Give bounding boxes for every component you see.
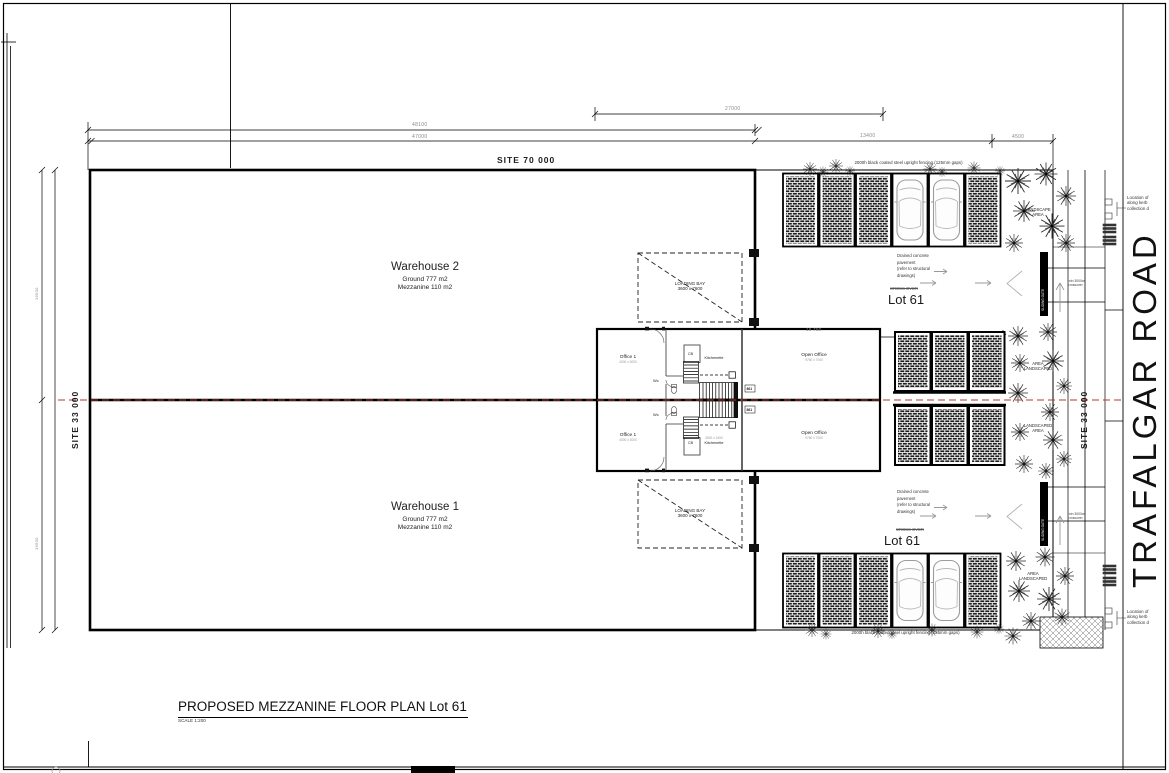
car-icon: [895, 180, 926, 240]
pavement-note-line: drawings): [897, 509, 930, 516]
pavement-note-line: (refer to structural: [897, 266, 930, 273]
lot-label-bottom: Lot 61: [884, 533, 920, 549]
kitchenette-name: Kitchenette: [690, 441, 738, 446]
dim-16500-upper: 16500: [35, 287, 40, 300]
warehouse2-ground: Ground 777 m2: [350, 276, 500, 284]
kitchenette-label-top: Kitchenette: [690, 356, 738, 361]
warehouse1-mezzanine: Mezzanine 110 m2: [350, 524, 500, 532]
tree-icon: [1057, 234, 1075, 252]
tree-icon: [1039, 323, 1057, 341]
crossover-note-bottom: min 3000w crossover: [1068, 512, 1084, 520]
landscape-label-bottom-right: AREA LANDSCAPED: [1007, 571, 1059, 581]
landscape-label-mid-upper: AREA LANDSCAPED: [1012, 361, 1064, 371]
open-office-label-top: Open Office 9760 x 7000: [782, 353, 846, 363]
dim-13400: 13400: [860, 133, 875, 139]
dim-27000: 27000: [725, 106, 740, 112]
warehouse2-mezzanine: Mezzanine 110 m2: [350, 284, 500, 292]
dim-47000: 47000: [412, 134, 427, 140]
kerb-note-line: collection d: [1127, 620, 1149, 625]
hatched-pad: [1040, 617, 1103, 648]
tree-icon: [1040, 214, 1065, 239]
tree-icon: [1008, 580, 1030, 602]
tree-icon: [829, 159, 843, 173]
pavement-note-line: drawings): [897, 273, 930, 280]
site-depth-label-right: SITE 33 000: [1079, 391, 1089, 449]
kerb-note-top: Location of along kerb collection d: [1127, 195, 1149, 211]
office1-label-bottom: Office 1 4000 x 3000: [604, 433, 652, 443]
landscape-line: AREA: [1012, 428, 1064, 433]
kitchenette-label-bottom: 3600 x 2400 Kitchenette: [690, 437, 738, 445]
scale-label: SCALE 1:200: [178, 718, 206, 724]
struck-note-top: CROSS OVER: [890, 286, 918, 291]
cb-label-top: CB: [688, 352, 693, 356]
pavement-note-top: Drained concrete pavement (refer to stru…: [897, 253, 930, 279]
parking-stalls-top: [783, 174, 1001, 247]
dim-48100: 48100: [412, 122, 427, 128]
unit-tag-bottom: 861: [747, 408, 753, 412]
plan-linework: [0, 0, 1169, 773]
loading-bay-line2: 3600 x 7600: [640, 513, 740, 518]
lot-label-top: Lot 61: [888, 292, 924, 308]
kerb-note-line: along kerb: [1127, 200, 1149, 205]
landscape-line: LANDSCAPED: [1007, 576, 1059, 581]
tree-icon: [1005, 168, 1031, 194]
wc-label-top: Wc: [653, 379, 659, 384]
titleblock-mark: [411, 766, 455, 773]
dim-18750: 18 750: [806, 327, 822, 332]
unit-tag-top: 861: [747, 387, 753, 391]
warehouse2-label: Warehouse 2 Ground 777 m2 Mezzanine 110 …: [350, 261, 500, 291]
tree-icon: [1041, 403, 1059, 421]
tree-icon: [1035, 163, 1058, 186]
parking-stalls-middle: [893, 332, 1006, 465]
cb-label-bottom: CB: [688, 441, 693, 445]
tree-icon: [1056, 451, 1072, 467]
struck-note-bottom: CROSS OVER: [896, 527, 924, 532]
office1-size: 4000 x 3000: [604, 361, 652, 365]
tree-icon: [1022, 612, 1040, 630]
tree-icon: [1005, 234, 1023, 252]
loading-bay-label-bottom: LOADING BAY 3600 x 7600: [640, 508, 740, 519]
tree-icon: [1036, 548, 1055, 567]
warehouse2-name: Warehouse 2: [350, 261, 500, 275]
loading-bay-line2: 3600 x 7600: [640, 286, 740, 291]
pavement-note-line: (refer to structural: [897, 502, 930, 509]
tree-icon: [1037, 587, 1061, 611]
pavement-note-line: Drained concrete: [897, 253, 930, 260]
vehicle-crossovers: [1048, 268, 1105, 521]
road-name: TRAFALGAR ROAD: [1125, 231, 1165, 588]
open-office-size: 9760 x 7000: [782, 437, 846, 441]
pavement-note-bottom: Drained concrete pavement (refer to stru…: [897, 489, 930, 515]
tree-icon: [1015, 455, 1033, 473]
kerb-note-line: along kerb: [1127, 614, 1149, 619]
landscape-line: LANDSCAPED: [1012, 366, 1064, 371]
page-title: PROPOSED MEZZANINE FLOOR PLAN Lot 61: [178, 699, 468, 718]
crossover-note-top: min 3000w crossover: [1068, 279, 1084, 287]
tree-icon: [1038, 463, 1054, 479]
landscape-label-mid-lower: LANDSCAPED AREA: [1012, 423, 1064, 433]
site-width-label: SITE 70 000: [497, 155, 555, 165]
parking-stalls-bottom: [783, 554, 1001, 628]
landscape-line: AREA: [1012, 212, 1064, 217]
tree-icon: [1056, 186, 1076, 206]
warehouse1-ground: Ground 777 m2: [350, 516, 500, 524]
open-office-label-bottom: Open Office 9760 x 7000: [782, 431, 846, 441]
tree-icon: [1006, 551, 1026, 571]
office1-size: 4000 x 3000: [604, 439, 652, 443]
tree-icon: [1008, 326, 1028, 346]
trees-middle: [1008, 323, 1072, 479]
tree-icon: [1056, 378, 1072, 394]
car-icon: [895, 561, 926, 621]
gate-label-bottom: SLIDING GATE: [1042, 519, 1046, 541]
fencing-note-top: 2000h black coated steel upright fencing…: [846, 160, 971, 165]
gate-label-top: SLIDING GATE: [1042, 289, 1046, 311]
kitchenette-name: Kitchenette: [690, 356, 738, 361]
warehouse1-label: Warehouse 1 Ground 777 m2 Mezzanine 110 …: [350, 501, 500, 531]
landscape-label-top-right: LANDSCAPE AREA: [1012, 207, 1064, 217]
dim-16500-lower: 16500: [35, 537, 40, 550]
wc-label-bottom: Wc: [653, 413, 659, 418]
open-office-size: 9760 x 7000: [782, 359, 846, 363]
office1-label-top: Office 1 4000 x 3000: [604, 355, 652, 365]
loading-bay-label-top: LOADING BAY 3600 x 7600: [640, 281, 740, 292]
pavement-note-line: Drained concrete: [897, 489, 930, 496]
warehouse1-name: Warehouse 1: [350, 501, 500, 515]
crossover-line: crossover: [1068, 283, 1084, 287]
floor-plan-sheet: SITE 70 000 SITE 33 000 SITE 33 000 TRAF…: [0, 0, 1169, 773]
car-icon: [931, 561, 962, 621]
site-depth-label-left: SITE 33 000: [70, 391, 80, 449]
crossover-line: crossover: [1068, 516, 1084, 520]
fencing-note-bottom: 2000h black coated steel upright fencing…: [843, 630, 968, 635]
kerb-note-bottom: Location of along kerb collection d: [1127, 609, 1149, 625]
kerb-note-line: collection d: [1127, 206, 1149, 211]
dim-4500: 4500: [1012, 134, 1024, 140]
car-icon: [931, 180, 962, 240]
